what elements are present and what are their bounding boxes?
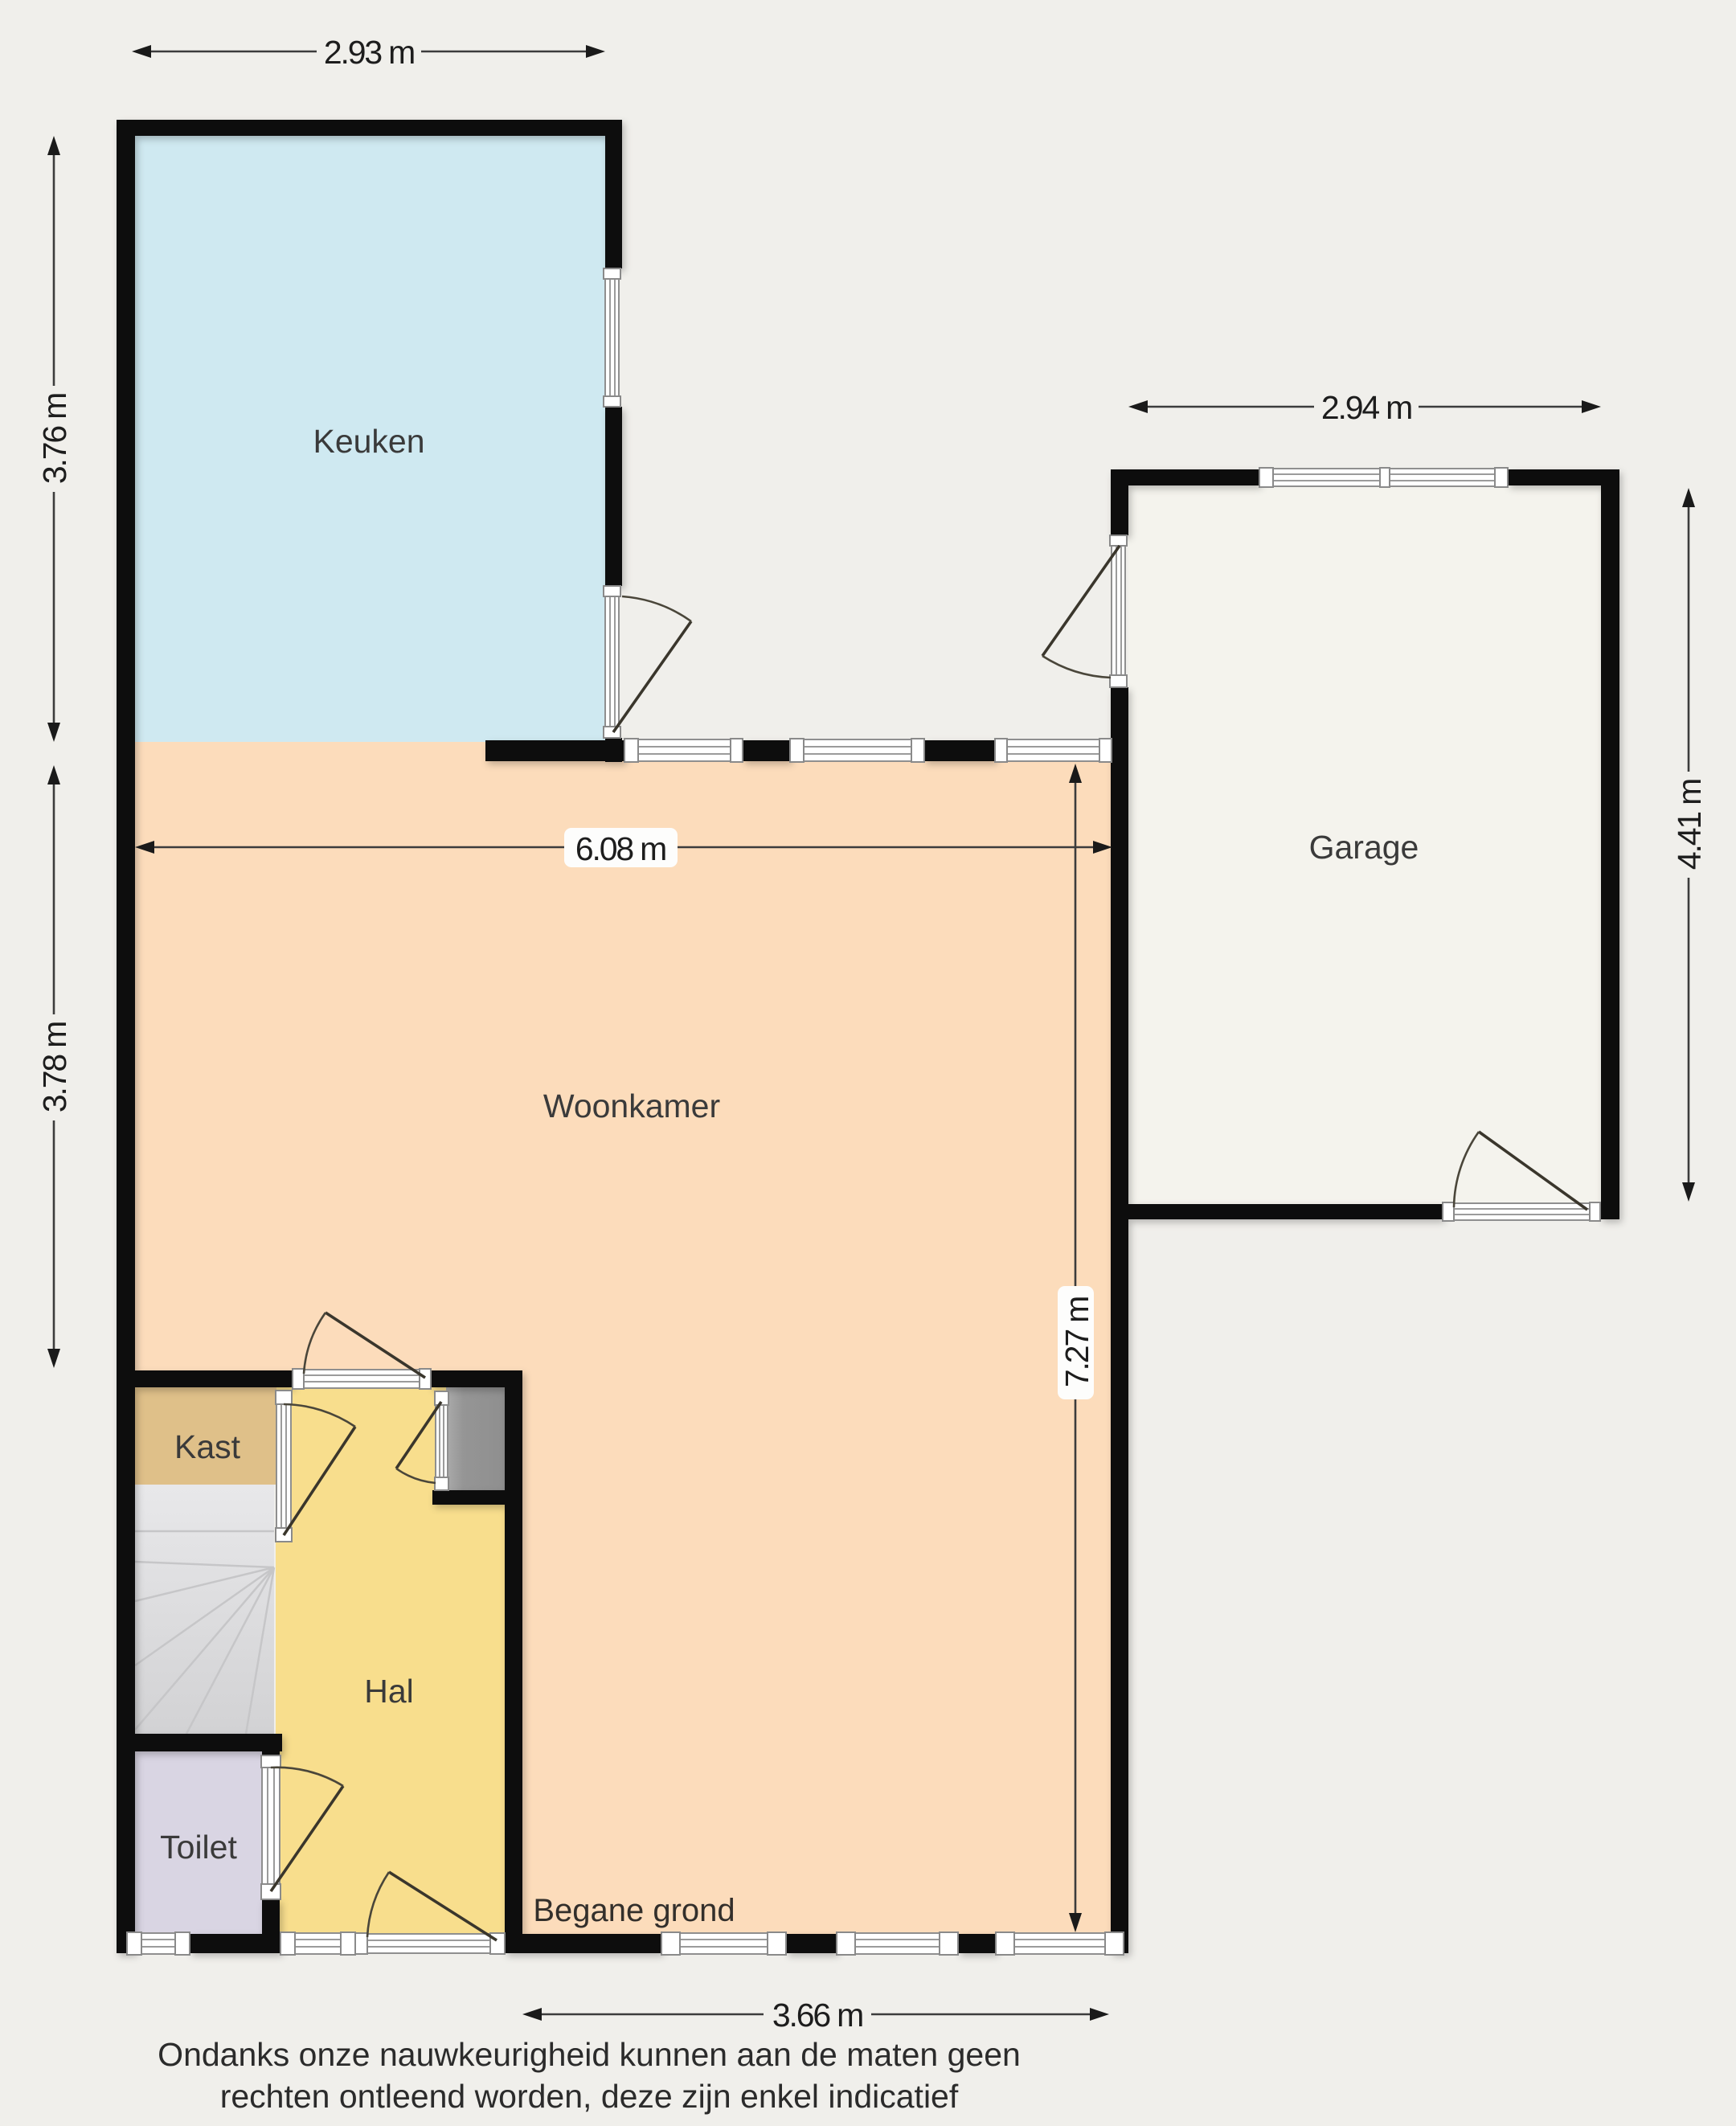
svg-text:Hal: Hal xyxy=(364,1673,414,1710)
svg-text:3.76 m: 3.76 m xyxy=(36,394,73,484)
svg-text:Woonkamer: Woonkamer xyxy=(543,1088,720,1124)
svg-text:Kast: Kast xyxy=(174,1428,241,1465)
svg-text:Begane grond: Begane grond xyxy=(533,1893,735,1928)
svg-text:Keuken: Keuken xyxy=(313,423,424,460)
svg-text:Ondanks onze nauwkeurigheid ku: Ondanks onze nauwkeurigheid kunnen aan d… xyxy=(158,2036,1021,2073)
svg-text:2.93 m: 2.93 m xyxy=(324,34,414,71)
svg-text:Garage: Garage xyxy=(1309,829,1419,866)
svg-text:6.08 m: 6.08 m xyxy=(575,830,665,867)
svg-text:2.94 m: 2.94 m xyxy=(1321,389,1411,426)
svg-text:rechten ontleend worden, deze: rechten ontleend worden, deze zijn enkel… xyxy=(220,2078,959,2115)
svg-text:7.27 m: 7.27 m xyxy=(1058,1297,1095,1387)
svg-text:Toilet: Toilet xyxy=(160,1829,237,1866)
svg-text:3.66 m: 3.66 m xyxy=(772,1997,862,2034)
svg-text:3.78 m: 3.78 m xyxy=(36,1022,73,1112)
svg-text:4.41 m: 4.41 m xyxy=(1671,780,1708,870)
